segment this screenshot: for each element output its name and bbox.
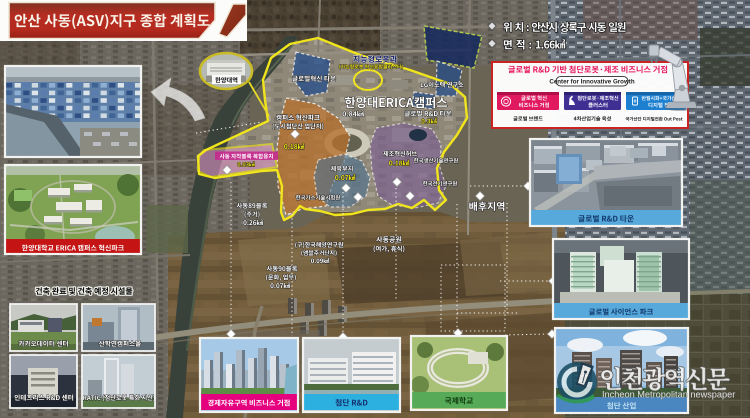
svg-text:Incheon Metropolitan newspaper: Incheon Metropolitan newspaper xyxy=(602,390,735,400)
svg-text:Center for Innovative Growth: Center for Innovative Growth xyxy=(549,79,634,86)
